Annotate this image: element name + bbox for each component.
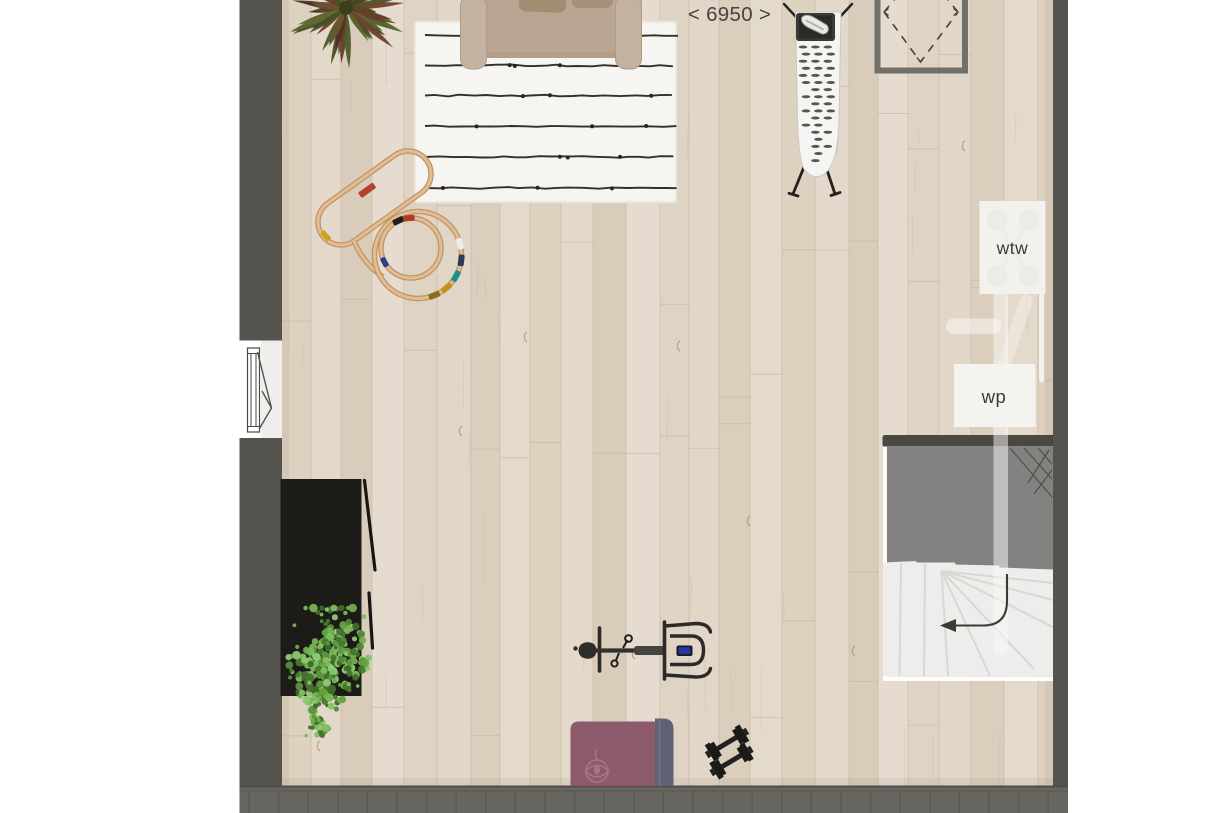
svg-text:wtw: wtw bbox=[996, 238, 1029, 258]
svg-text:wp: wp bbox=[981, 386, 1007, 407]
svg-text:< 6950 >: < 6950 > bbox=[688, 3, 771, 26]
